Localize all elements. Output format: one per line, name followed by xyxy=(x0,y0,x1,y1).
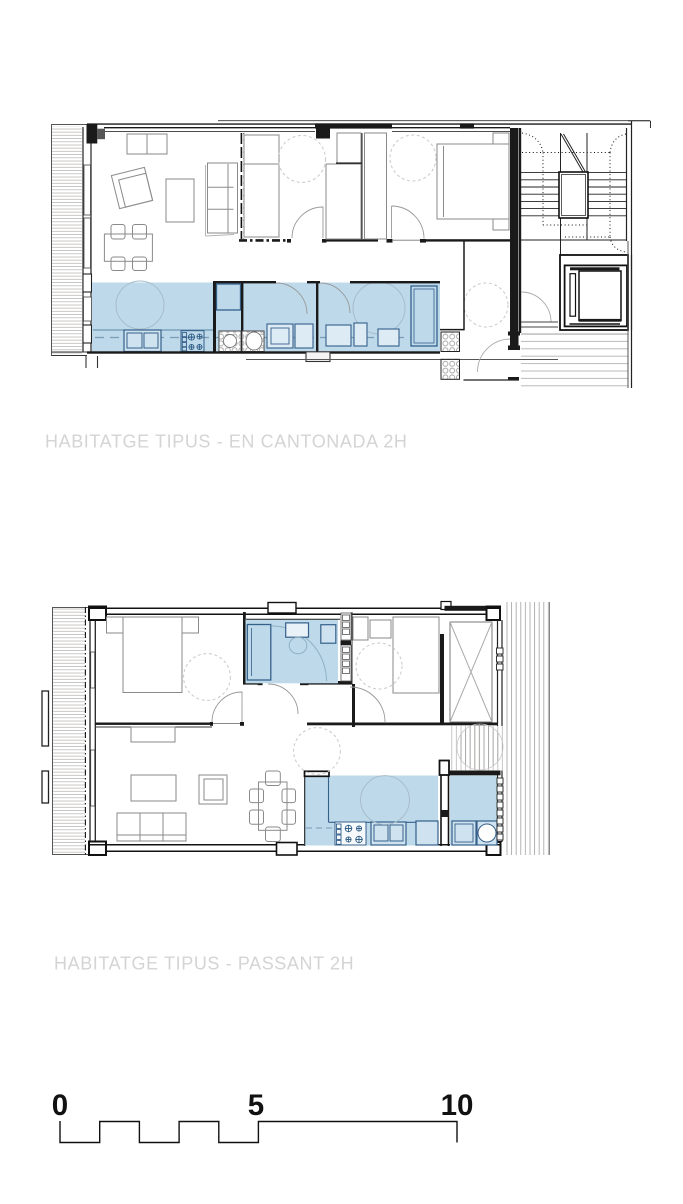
svg-text:HABITATGE TIPUS - PASSANT 2H: HABITATGE TIPUS - PASSANT 2H xyxy=(54,954,354,974)
svg-text:HABITATGE TIPUS - EN CANTONADA: HABITATGE TIPUS - EN CANTONADA 2H xyxy=(45,431,408,451)
svg-text:5: 5 xyxy=(248,1089,264,1122)
svg-text:10: 10 xyxy=(441,1089,474,1122)
svg-text:0: 0 xyxy=(52,1089,68,1122)
